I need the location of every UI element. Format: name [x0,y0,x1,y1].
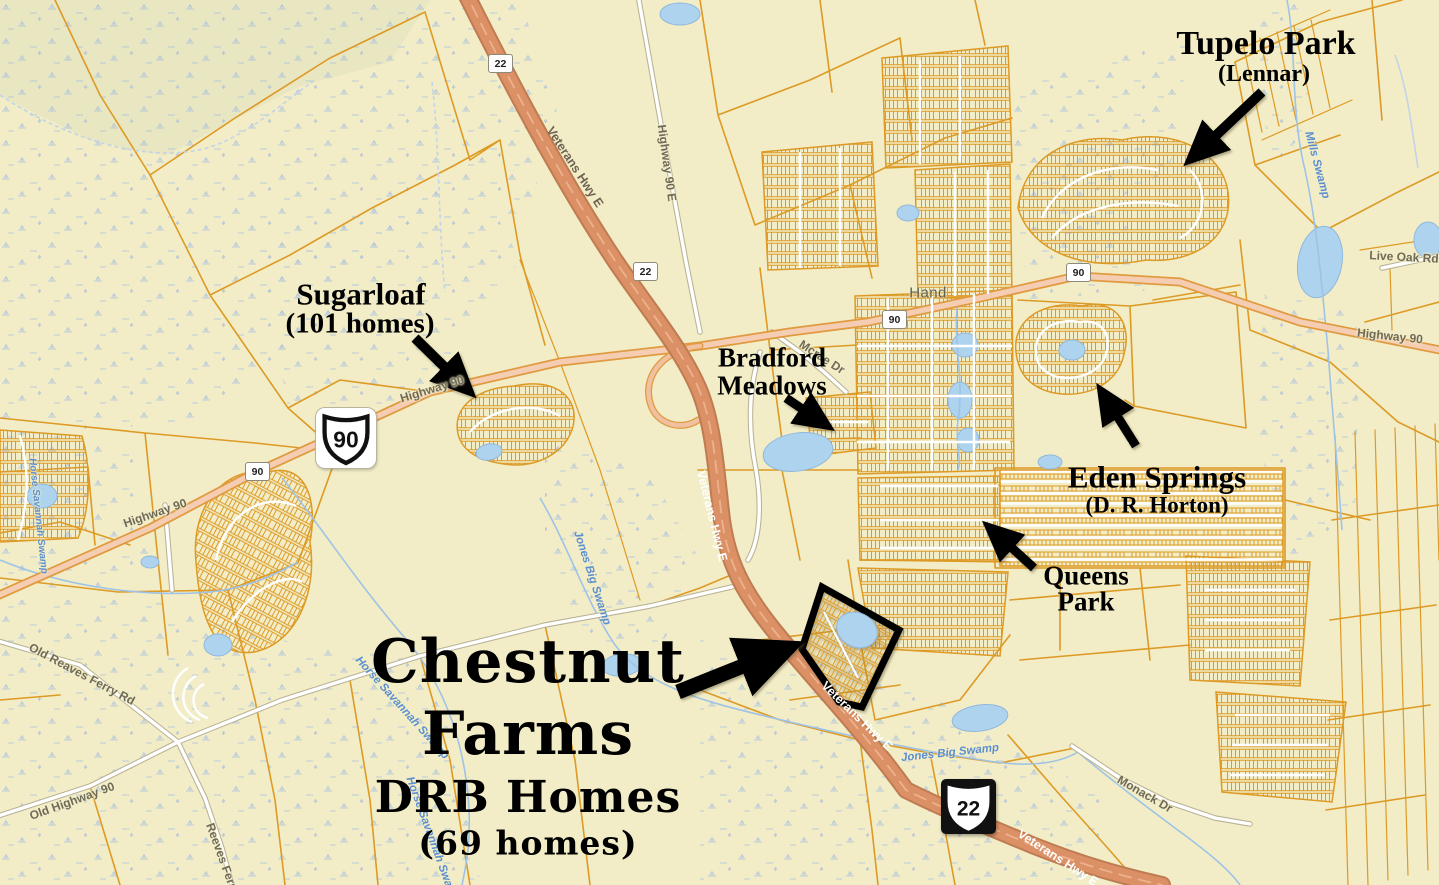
us-90-number: 90 [333,426,358,452]
us-22-route-shield: 22 [941,779,996,834]
map-canvas: 90 22 22 22 90 90 90 Highway 90 Highway … [0,0,1439,885]
sc-90-marker-left: 90 [245,462,270,481]
us-90-route-shield: 90 [316,408,376,468]
sc-22-marker-top: 22 [488,54,513,73]
queens-park-subdivision [1000,470,1283,566]
sc-22-marker-mid: 22 [633,262,658,281]
map-artwork [0,0,1439,885]
us-22-number: 22 [957,798,980,821]
sc-90-marker-hand-east: 90 [1066,263,1091,282]
sc-90-marker-hand-west: 90 [882,310,907,329]
